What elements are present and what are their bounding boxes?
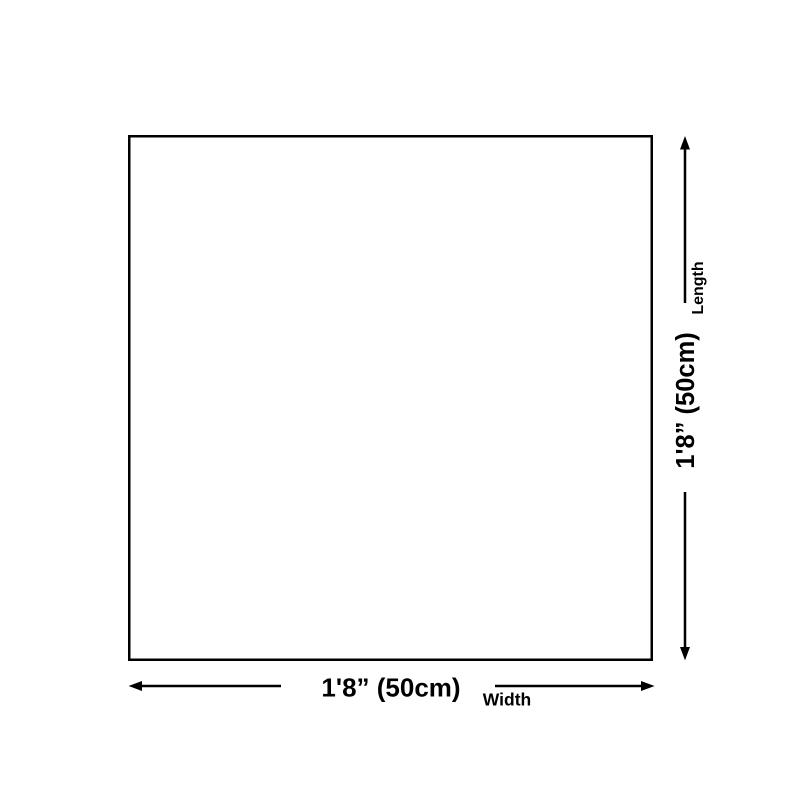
svg-text:1'8” (50cm): 1'8” (50cm) [672, 332, 700, 468]
svg-text:1'8” (50cm): 1'8” (50cm) [321, 672, 460, 702]
svg-text:Length: Length [690, 261, 707, 314]
svg-text:Width: Width [483, 690, 531, 710]
